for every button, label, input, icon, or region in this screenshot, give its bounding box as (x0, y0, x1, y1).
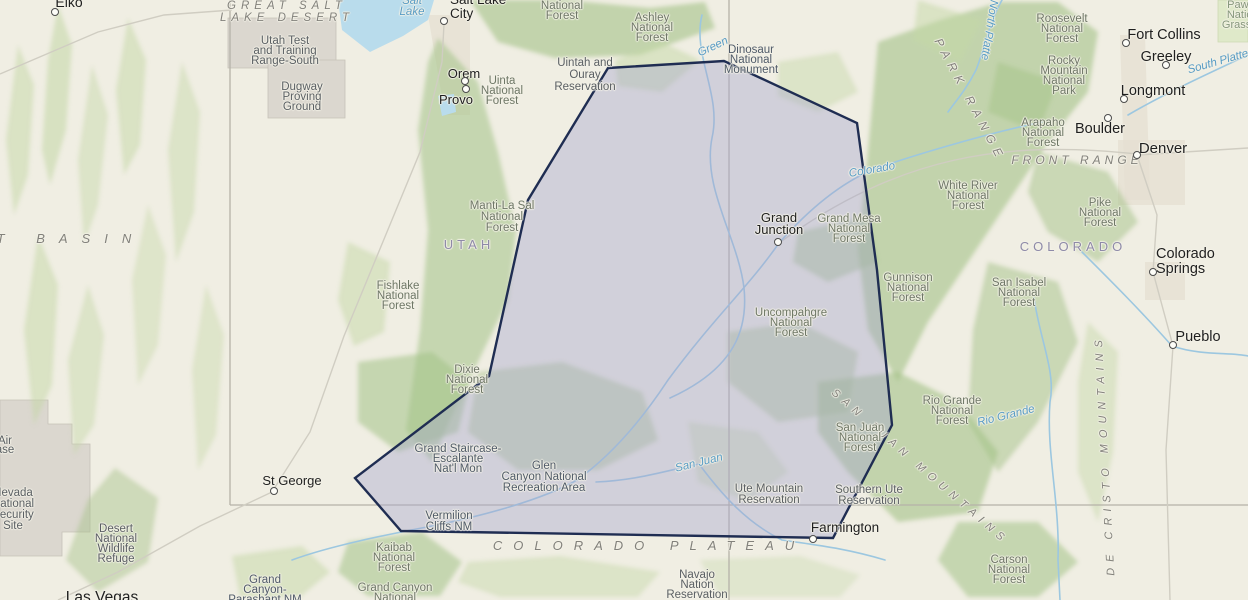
label-north-platte-river: North Platte (979, 0, 998, 61)
label-colorado-springs: ColoradoSprings (1156, 247, 1215, 277)
label-line: Reservation (666, 590, 727, 600)
label-line: COLORADO (1020, 240, 1126, 253)
label-pike-national-forest: PikeNationalForest (1079, 198, 1121, 228)
label-line: Elko (55, 0, 82, 10)
label-elko: Elko (55, 0, 82, 10)
label-navajo-nation-reservation: NavajoNationReservation (666, 570, 727, 600)
label-line: Forest (446, 385, 488, 395)
label-line: Colorado (1156, 247, 1215, 262)
label-line: Longmont (1121, 84, 1186, 99)
label-line: Ouray (554, 69, 615, 81)
label-utah-test-range: Utah Testand TrainingRange-South (251, 36, 319, 66)
label-line: Monument (724, 65, 778, 75)
label-san-juan-river: San Juan (674, 452, 724, 473)
label-line: Forest (373, 563, 415, 573)
label-gunnison-national-forest: GunnisonNationalForest (883, 273, 932, 303)
label-arapaho-national-forest: ArapahoNationalForest (1021, 118, 1064, 148)
label-line: Reservation (735, 495, 803, 506)
label-ute-mountain-reservation: Ute MountainReservation (735, 484, 803, 506)
label-line: Park (1040, 86, 1087, 96)
city-marker-elko (51, 8, 59, 16)
label-ashley-national-forest: AshleyNationalForest (631, 13, 673, 43)
label-line: Parashant NM (228, 595, 302, 600)
label-line: Forest (923, 416, 982, 426)
label-line: Las Vegas (66, 590, 138, 600)
label-desert-national-wildlife-refuge: DesertNationalWildlifeRefuge (95, 524, 137, 564)
label-great-salt-lake: SaltLake (400, 0, 425, 18)
label-kaibab-national-forest: KaibabNationalForest (373, 543, 415, 573)
city-marker-pueblo (1169, 341, 1177, 349)
label-line: Recreation Area (501, 483, 586, 494)
label-line: PARK RANGE (933, 37, 1007, 163)
label-line: Forest (1079, 218, 1121, 228)
label-southern-ute-reservation: Southern UteReservation (835, 485, 903, 507)
label-utah-state: UTAH (444, 238, 494, 251)
label-line: FRONT RANGE (1011, 154, 1142, 166)
label-fishlake-national-forest: FishlakeNationalForest (377, 281, 420, 311)
label-colorado-river: Colorado (848, 161, 896, 179)
city-marker-farmington (809, 535, 817, 543)
label-grand-staircase-escalante: Grand Staircase-EscalanteNat'l Mon (415, 444, 502, 474)
label-line: Junction (755, 224, 803, 236)
label-line: City (450, 7, 506, 21)
label-line: Forest (377, 301, 420, 311)
label-air-base-fragment: Airase (0, 437, 14, 455)
label-dinosaur-national-monument: DinosaurNationalMonument (724, 45, 778, 75)
label-line: Forest (988, 575, 1030, 585)
label-south-platte-river: South Platte (1187, 49, 1248, 76)
label-line: Forest (836, 443, 885, 453)
label-line: Rio Grande (976, 404, 1035, 428)
label-line: South Platte (1187, 49, 1248, 76)
label-line: GREAT SALT (220, 0, 354, 12)
label-provo: Provo (439, 93, 473, 106)
city-marker-grand-junction (774, 238, 782, 246)
label-line: Forest (992, 298, 1046, 308)
city-marker-greeley (1162, 61, 1170, 69)
label-roosevelt-national-forest: RooseveltNationalForest (1036, 14, 1087, 44)
label-line: Forest (481, 96, 523, 106)
label-line: Forest (541, 11, 583, 21)
label-line: Reservation (554, 81, 615, 93)
city-marker-orem (461, 77, 469, 85)
label-line: Pueblo (1175, 330, 1220, 345)
label-nevada-national-security-site: NevadaNationalSecuritySite (0, 488, 34, 532)
label-park-range: PARK RANGE (933, 37, 1007, 163)
label-line: Uintah and (554, 57, 615, 69)
label-de-cristo-mountains: DE CRISTO MOUNTAINS (1094, 334, 1117, 576)
label-boulder: Boulder (1075, 122, 1125, 137)
label-line: St George (262, 474, 321, 487)
label-line: Forest (938, 201, 997, 211)
label-line: Forest (470, 223, 535, 234)
label-line: Range-South (251, 56, 319, 66)
city-marker-boulder (1104, 114, 1112, 122)
map-viewport[interactable]: ElkoGREAT SALTLAKE DESERTUtah Testand Tr… (0, 0, 1248, 600)
label-line: Forest (1021, 138, 1064, 148)
label-line: GREAT BASIN (0, 232, 145, 246)
label-vermilion-cliffs-nm: VermilionCliffs NM (425, 511, 472, 533)
map-labels-layer: ElkoGREAT SALTLAKE DESERTUtah Testand Tr… (0, 0, 1248, 600)
label-uintah-ouray-reservation: Uintah andOurayReservation (554, 57, 615, 93)
label-grand-canyon-parashant-nm: GrandCanyon-Parashant NM (228, 575, 302, 600)
label-line: Springs (1156, 262, 1215, 277)
label-san-isabel-national-forest: San IsabelNationalForest (992, 278, 1046, 308)
city-marker-st-george (270, 487, 278, 495)
label-las-vegas: Las Vegas (66, 590, 138, 600)
label-line: LAKE DESERT (220, 12, 354, 24)
label-line: Forest (883, 293, 932, 303)
label-line: Site (0, 521, 34, 532)
label-grand-canyon-national: Grand CanyonNational (358, 583, 433, 600)
label-glen-canyon-nra: GlenCanyon NationalRecreation Area (501, 461, 586, 494)
label-line: DE CRISTO MOUNTAINS (1094, 334, 1117, 576)
city-marker-provo (462, 85, 470, 93)
label-line: Denver (1139, 141, 1187, 156)
city-marker-denver (1133, 151, 1141, 159)
label-line: COLORADO PLATEAU (493, 539, 805, 553)
label-line: Ground (281, 102, 323, 112)
label-front-range: FRONT RANGE (1011, 154, 1142, 166)
label-line: North Platte (979, 0, 998, 61)
label-san-juan-national-forest: San JuanNationalForest (836, 423, 885, 453)
label-colorado-plateau: COLORADO PLATEAU (493, 539, 805, 553)
label-line: San Juan (674, 452, 724, 473)
label-uncompahgre-national-forest: UncompahgreNationalForest (755, 308, 827, 338)
label-line: Lake (400, 7, 425, 18)
label-line: Forest (631, 33, 673, 43)
city-marker-salt-lake-city (440, 17, 448, 25)
label-line: Forest (817, 234, 880, 244)
label-white-river-national-forest: White RiverNationalForest (938, 181, 997, 211)
label-line: Colorado (848, 161, 896, 179)
label-fort-collins: Fort Collins (1127, 28, 1200, 43)
label-dugway-proving-ground: DugwayProvingGround (281, 82, 323, 112)
label-denver: Denver (1139, 141, 1187, 156)
label-line: Grassland (1222, 20, 1248, 30)
city-marker-fort-collins (1122, 39, 1130, 47)
label-farmington: Farmington (811, 521, 879, 535)
label-dixie-national-forest: DixieNationalForest (446, 365, 488, 395)
label-grand-mesa-national-forest: Grand MesaNationalForest (817, 214, 880, 244)
label-line: ase (0, 446, 14, 455)
label-line: Boulder (1075, 122, 1125, 137)
label-line: Cliffs NM (425, 522, 472, 533)
label-line: Forest (1036, 34, 1087, 44)
label-st-george: St George (262, 474, 321, 487)
label-rocky-mountain-national-park: RockyMountainNationalPark (1040, 56, 1087, 96)
label-uinta-national-forest: UintaNationalForest (481, 76, 523, 106)
city-marker-longmont (1120, 95, 1128, 103)
label-line: National (358, 593, 433, 600)
label-line: Nat'l Mon (415, 464, 502, 474)
label-line: Forest (755, 328, 827, 338)
label-great-basin: GREAT BASIN (0, 232, 145, 246)
label-rio-grande-national-forest: Rio GrandeNationalForest (923, 396, 982, 426)
label-line: Reservation (835, 496, 903, 507)
label-colorado-state: COLORADO (1020, 240, 1126, 253)
label-grand-junction: GrandJunction (755, 212, 803, 236)
label-line: Fort Collins (1127, 28, 1200, 43)
label-rio-grande-river: Rio Grande (976, 404, 1035, 428)
label-line: Farmington (811, 521, 879, 535)
label-line: UTAH (444, 238, 494, 251)
label-manti-lasal-national-forest: Manti-La SalNationalForest (470, 201, 535, 234)
label-pawnee-national-grassland: PawneeNationalGrassland (1222, 0, 1248, 30)
label-line: Refuge (95, 554, 137, 564)
label-line: Provo (439, 93, 473, 106)
city-marker-colorado-springs (1149, 268, 1157, 276)
label-wasatch-national-forest: NationalForest (541, 1, 583, 21)
label-great-salt-lake-desert: GREAT SALTLAKE DESERT (220, 0, 354, 24)
label-carson-national-forest: CarsonNationalForest (988, 555, 1030, 585)
label-longmont: Longmont (1121, 84, 1186, 99)
label-pueblo: Pueblo (1175, 330, 1220, 345)
label-salt-lake-city: Salt LakeCity (450, 0, 506, 21)
